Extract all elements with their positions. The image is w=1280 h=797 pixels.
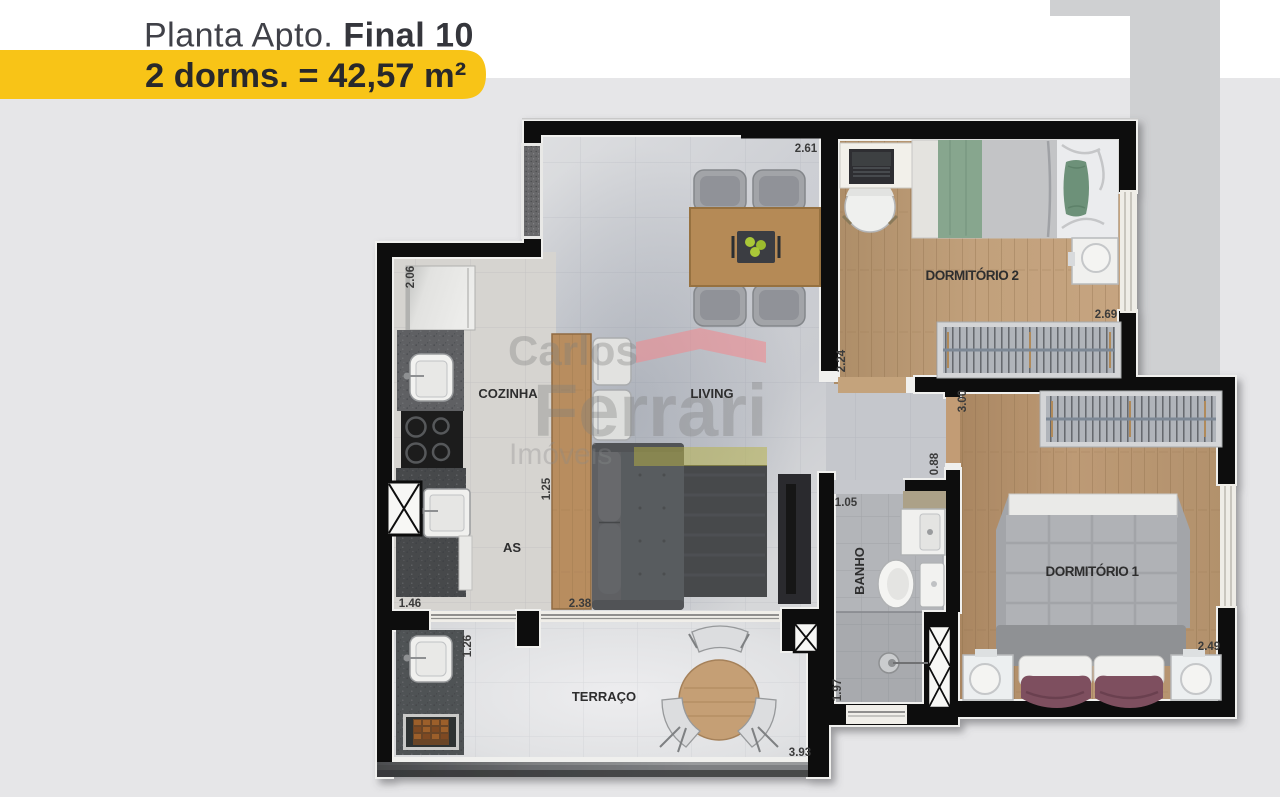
svg-text:Carlos: Carlos [508, 327, 639, 374]
svg-text:Imóveis: Imóveis [509, 438, 612, 471]
svg-text:1.25: 1.25 [541, 477, 553, 500]
svg-text:3.00: 3.00 [957, 390, 969, 412]
svg-text:3.93: 3.93 [789, 747, 811, 759]
svg-text:AS: AS [503, 540, 521, 555]
svg-text:1.05: 1.05 [835, 497, 858, 509]
svg-text:2.49: 2.49 [1198, 641, 1220, 653]
svg-text:2 dorms. = 42,57 m²: 2 dorms. = 42,57 m² [145, 57, 466, 95]
svg-text:2.61: 2.61 [795, 143, 818, 155]
svg-text:COZINHA: COZINHA [478, 386, 538, 401]
svg-text:2.38: 2.38 [569, 598, 592, 610]
svg-text:1.97: 1.97 [832, 679, 844, 701]
svg-text:2.06: 2.06 [405, 266, 417, 288]
svg-text:1.46: 1.46 [399, 598, 421, 610]
svg-text:DORMITÓRIO 2: DORMITÓRIO 2 [925, 268, 1018, 283]
svg-text:DORMITÓRIO 1: DORMITÓRIO 1 [1045, 564, 1139, 579]
svg-text:Planta Apto. Final 10: Planta Apto. Final 10 [144, 17, 474, 55]
svg-text:TERRAÇO: TERRAÇO [572, 689, 636, 704]
svg-text:2.24: 2.24 [836, 349, 848, 372]
svg-text:1.26: 1.26 [462, 635, 474, 657]
svg-text:2.69: 2.69 [1095, 309, 1117, 321]
svg-text:BANHO: BANHO [852, 547, 867, 595]
svg-text:0.88: 0.88 [929, 452, 941, 475]
svg-text:LIVING: LIVING [690, 386, 733, 401]
